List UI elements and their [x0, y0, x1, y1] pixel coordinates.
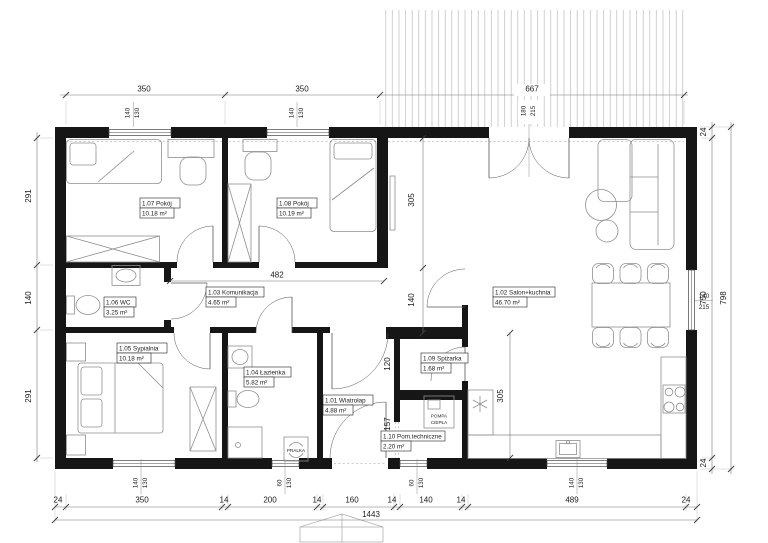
windim-kitchen-w: 140: [569, 477, 576, 488]
windim-107-h: 130: [134, 107, 141, 118]
room-label-pantry: 1.09 Spiżarka 1.68 m²: [421, 353, 468, 373]
dining-set: [592, 264, 670, 348]
kitchen-counter: [468, 357, 686, 459]
windim-terrace-h: 215: [530, 105, 537, 116]
room-label-technical: 1.10 Pom.techniczne 2.20 m²: [381, 431, 445, 451]
door-bedroom: [174, 333, 210, 369]
single-bed-108: [330, 140, 376, 232]
room-area-107: 10.18 m²: [142, 210, 167, 217]
windim-bedroom-w: 140: [133, 477, 140, 488]
floor-plan-drawing: 350 350 667 291 140 291 24 750 798 24 24…: [0, 0, 768, 543]
room-area-108: 10.19 m²: [279, 210, 304, 217]
room-title-hall: 1.03 Komunikacja: [208, 289, 259, 296]
room-label-wc: 1.06 WC 3.25 m²: [104, 297, 136, 317]
room-area-bedroom: 10.18 m²: [119, 355, 144, 362]
single-bed-107: [67, 140, 162, 184]
window-bathroom: [272, 458, 299, 469]
wc-sink: [112, 266, 140, 286]
windim-108-w: 140: [289, 107, 296, 118]
room-area-bathroom: 5.82 m²: [246, 379, 267, 386]
window-technical: [400, 458, 427, 469]
room-label-108: 1.08 Pokój 10.19 m²: [277, 198, 317, 218]
dim-left-0: 291: [24, 189, 33, 203]
dim-corridor: 140: [407, 293, 416, 307]
room-title-107: 1.07 Pokój: [142, 200, 172, 207]
dim-bottom-1: 350: [135, 496, 149, 505]
room-area-living: 46.70 m²: [495, 299, 520, 306]
dim-left-2: 291: [24, 389, 33, 403]
room-title-pantry: 1.09 Spiżarka: [423, 355, 462, 362]
room-label-vestibule: 1.01 Wiatrołap 4.88 m²: [323, 395, 373, 415]
wardrobe-bedroom: [190, 387, 216, 451]
dishwasher-symbol: [473, 396, 487, 412]
windim-108-h: 130: [298, 107, 305, 118]
bath-toilet: [228, 391, 259, 408]
dim-hall: 482: [270, 271, 284, 280]
washer-label: PRALKA: [287, 448, 306, 453]
dim-right-2: 798: [719, 291, 728, 305]
dim-top-0: 350: [137, 85, 151, 94]
room-area-pantry: 1.68 m²: [423, 365, 444, 372]
room-area-vestibule: 4.88 m²: [325, 407, 346, 414]
lintel-dashes: [66, 142, 684, 464]
windim-bedroom-h: 130: [142, 477, 149, 488]
floor-plan-canvas: 350 350 667 291 140 291 24 750 798 24 24…: [0, 0, 768, 543]
dim-top-2: 667: [525, 85, 539, 94]
door-bathroom: [256, 297, 292, 333]
dim-right-0: 24: [699, 127, 708, 136]
windim-bath-w: 60: [277, 479, 284, 486]
room-title-wc: 1.06 WC: [106, 299, 131, 306]
window-room107: [109, 127, 171, 138]
door-living: [427, 269, 465, 307]
window-room108: [267, 127, 329, 138]
dim-salon-height: 305: [407, 193, 416, 207]
door-room107: [177, 226, 213, 262]
room-title-bathroom: 1.04 Łazienka: [246, 369, 286, 376]
dim-bottom-8: 14: [457, 496, 466, 505]
dim-bottom-2: 14: [220, 496, 229, 505]
room-area-technical: 2.20 m²: [383, 443, 404, 450]
room-title-technical: 1.10 Pom.techniczne: [383, 433, 442, 440]
windim-tech-w: 60: [409, 479, 416, 486]
windim-terrace-w: 180: [521, 105, 528, 116]
desk-chair-108: [243, 140, 277, 181]
heat-pump-label-2: CIEPŁA: [431, 420, 448, 425]
room-area-wc: 3.25 m²: [106, 309, 127, 316]
windows: [109, 127, 697, 469]
dim-bottom-9: 489: [565, 496, 579, 505]
dim-top-1: 350: [295, 85, 309, 94]
cooktop: [663, 385, 685, 413]
windim-bath-h: 130: [286, 477, 293, 488]
room-label-107: 1.07 Pokój 10.18 m²: [140, 198, 180, 218]
windim-107-w: 140: [125, 107, 132, 118]
room-title-vestibule: 1.01 Wiatrołap: [325, 397, 366, 404]
room-area-hall: 4.65 m²: [208, 299, 229, 306]
door-room108: [259, 226, 295, 262]
dim-bottom-5: 160: [345, 496, 359, 505]
shower-tray: [228, 427, 262, 458]
heat-pump-label-1: POMPA: [431, 414, 448, 419]
windim-tech-h: 130: [418, 477, 425, 488]
window-bedroom: [113, 458, 175, 469]
dim-left-1: 140: [24, 291, 33, 305]
room-title-108: 1.08 Pokój: [279, 200, 309, 207]
furniture: [67, 140, 687, 462]
room-label-living: 1.02 Salon+kuchnia 46.70 m²: [493, 287, 555, 307]
dim-bottom-7: 140: [419, 496, 433, 505]
room-labels: 1.07 Pokój 10.18 m² 1.08 Pokój 10.19 m² …: [104, 198, 555, 451]
windim-right-h: 215: [699, 304, 710, 311]
shelf-livingwall: [390, 176, 395, 230]
door-vestibule: [332, 333, 388, 389]
wc-toilet: [67, 296, 101, 315]
room-label-bathroom: 1.04 Łazienka 5.82 m²: [244, 367, 291, 387]
desk-chair-107: [168, 140, 214, 186]
windim-kitchen-h: 130: [578, 477, 585, 488]
dim-bottom-4: 14: [313, 496, 322, 505]
dim-bottom-0: 24: [54, 496, 63, 505]
room-label-hall: 1.03 Komunikacja 4.65 m²: [206, 287, 264, 307]
room-title-living: 1.02 Salon+kuchnia: [495, 289, 551, 296]
room-label-bedroom: 1.05 Sypialnia 10.18 m²: [117, 343, 167, 363]
kitchen-sink: [556, 441, 580, 458]
door-wc: [171, 283, 207, 319]
dim-tech: 157: [383, 417, 392, 431]
dim-bottom-6: 14: [388, 496, 397, 505]
dim-total: 1443: [362, 510, 380, 519]
wardrobe-108: [228, 184, 251, 262]
room-title-bedroom: 1.05 Sypialnia: [119, 345, 159, 352]
coffee-tables: [586, 190, 619, 243]
corner-sofa: [598, 140, 674, 250]
wardrobe-107: [67, 236, 160, 262]
dim-bottom-3: 200: [263, 496, 277, 505]
dim-kitchen-height: 305: [496, 389, 505, 403]
bath-sink: [228, 346, 252, 368]
window-living-east: [686, 270, 697, 330]
windim-right-w: 140: [699, 293, 710, 300]
dim-right-3: 24: [699, 458, 708, 467]
dim-bottom-10: 24: [682, 496, 691, 505]
dim-pantry: 120: [383, 357, 392, 371]
